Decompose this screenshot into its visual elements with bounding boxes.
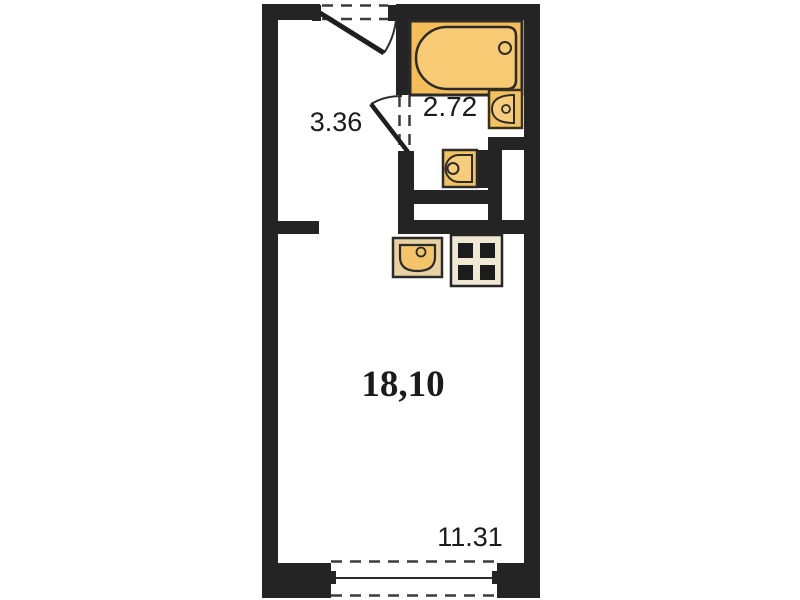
wall-left bbox=[262, 4, 278, 598]
bathroom-sink-drain bbox=[502, 105, 510, 113]
burner-icon bbox=[458, 243, 473, 258]
burner-icon bbox=[458, 265, 473, 280]
entrance-door-arc bbox=[384, 20, 396, 53]
burner-icon bbox=[480, 243, 495, 258]
wall-right bbox=[524, 4, 540, 598]
bathroom-door-arc bbox=[371, 96, 402, 104]
entrance-jamb-left bbox=[312, 5, 321, 21]
kitchen-sink-drain bbox=[417, 248, 426, 257]
window bbox=[326, 571, 502, 584]
main-room-area-label: 18,10 bbox=[361, 364, 444, 405]
wall-bathroom-bottom bbox=[398, 190, 502, 204]
wall-top-right bbox=[396, 4, 540, 20]
window-zone-area-label: 11.31 bbox=[437, 522, 503, 552]
wall-hall-stub bbox=[278, 221, 319, 234]
bathroom-sink bbox=[489, 90, 522, 128]
floor-plan-drawing: 3.36 2.72 18,10 11.31 bbox=[0, 0, 800, 600]
floor-plan-canvas: 3.36 2.72 18,10 11.31 bbox=[0, 0, 800, 600]
kitchen-sink bbox=[393, 238, 442, 277]
bathroom-door bbox=[371, 96, 408, 152]
wall-niche-left bbox=[488, 137, 502, 234]
bathtub-basin bbox=[416, 27, 516, 89]
wall-top-left bbox=[262, 4, 320, 20]
wall-bottom-left bbox=[262, 563, 331, 598]
washing-machine bbox=[443, 150, 477, 187]
stove bbox=[451, 235, 502, 286]
bathroom-door-leaf bbox=[371, 104, 408, 152]
window-frame-block-left bbox=[326, 571, 336, 584]
burner-icon bbox=[480, 265, 495, 280]
washing-machine-door bbox=[448, 163, 459, 174]
wall-niche-top bbox=[488, 137, 524, 150]
wall-bottom-right bbox=[497, 563, 540, 598]
bathtub bbox=[410, 21, 522, 95]
bathtub-drain bbox=[499, 42, 511, 54]
hallway-area-label: 3.36 bbox=[310, 107, 363, 137]
entrance-jamb-right bbox=[388, 5, 397, 21]
wall-kitchen-top bbox=[398, 220, 540, 234]
bathroom-area-label: 2.72 bbox=[423, 91, 478, 122]
window-frame-block-right bbox=[492, 571, 502, 584]
